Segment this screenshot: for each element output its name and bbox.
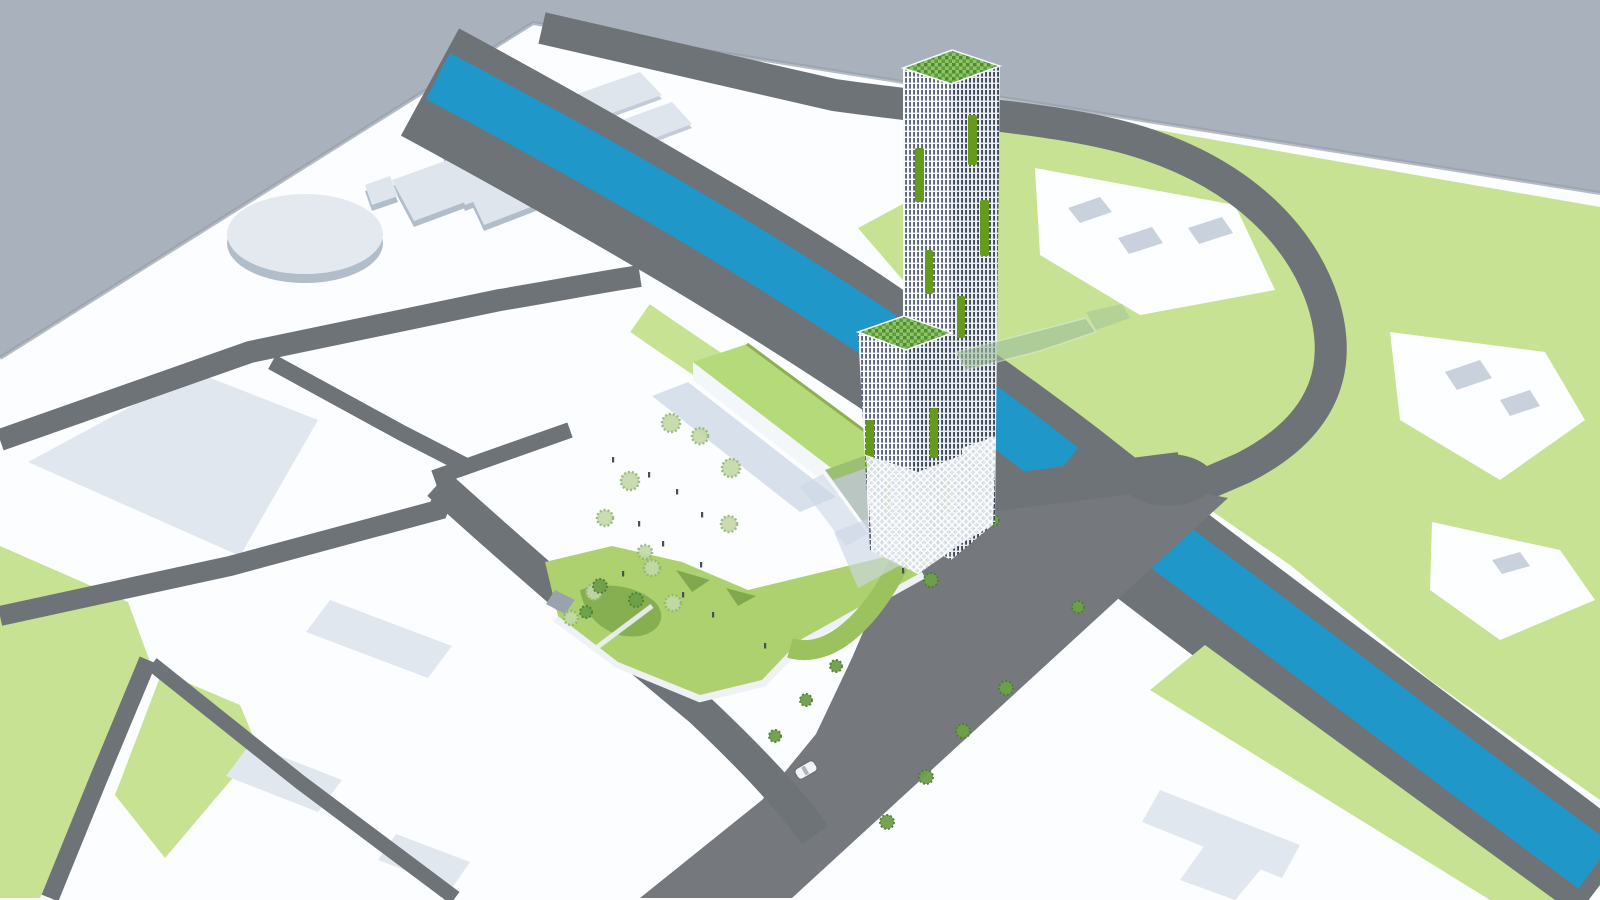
tree-icon	[621, 472, 639, 490]
site-plan-render	[0, 0, 1600, 900]
tree-icon	[644, 560, 660, 576]
intersection	[1122, 454, 1214, 506]
pedestrian-figure	[712, 612, 714, 618]
tree-icon	[722, 459, 740, 477]
pedestrian-figure	[902, 568, 904, 574]
pedestrian-figure	[612, 457, 614, 463]
green-terrace	[925, 250, 933, 294]
tree-icon	[956, 724, 970, 738]
green-terrace	[915, 148, 924, 202]
tree-icon	[924, 573, 938, 587]
tree-icon	[830, 660, 842, 672]
tree-icon	[721, 516, 737, 532]
tree-icon	[662, 414, 680, 432]
pedestrian-figure	[662, 541, 664, 547]
pedestrian-figure	[648, 472, 650, 478]
render-viewport	[0, 0, 1600, 900]
tree-icon	[593, 579, 607, 593]
pedestrian-figure	[764, 643, 766, 649]
pedestrian-figure	[638, 521, 640, 527]
pedestrian-figure	[682, 592, 684, 598]
tree-icon	[1072, 601, 1084, 613]
tree-icon	[999, 681, 1013, 695]
pedestrian-figure	[676, 489, 678, 495]
pedestrian-figure	[701, 512, 703, 518]
tree-icon	[597, 510, 613, 526]
tree-icon	[580, 606, 592, 618]
green-terrace	[968, 115, 977, 165]
tree-icon	[629, 593, 643, 607]
pedestrian-figure	[622, 571, 624, 577]
green-terrace	[930, 408, 938, 458]
green-terrace	[980, 200, 989, 256]
tree-icon	[665, 595, 681, 611]
tree-icon	[564, 611, 578, 625]
tree-icon	[769, 730, 781, 742]
tree-icon	[692, 428, 708, 444]
tree-icon	[800, 694, 812, 706]
tree-icon	[880, 815, 894, 829]
green-terrace	[957, 296, 965, 338]
tree-icon	[638, 545, 652, 559]
tree-icon	[919, 770, 933, 784]
pedestrian-figure	[700, 562, 702, 568]
oval-building	[227, 194, 383, 274]
